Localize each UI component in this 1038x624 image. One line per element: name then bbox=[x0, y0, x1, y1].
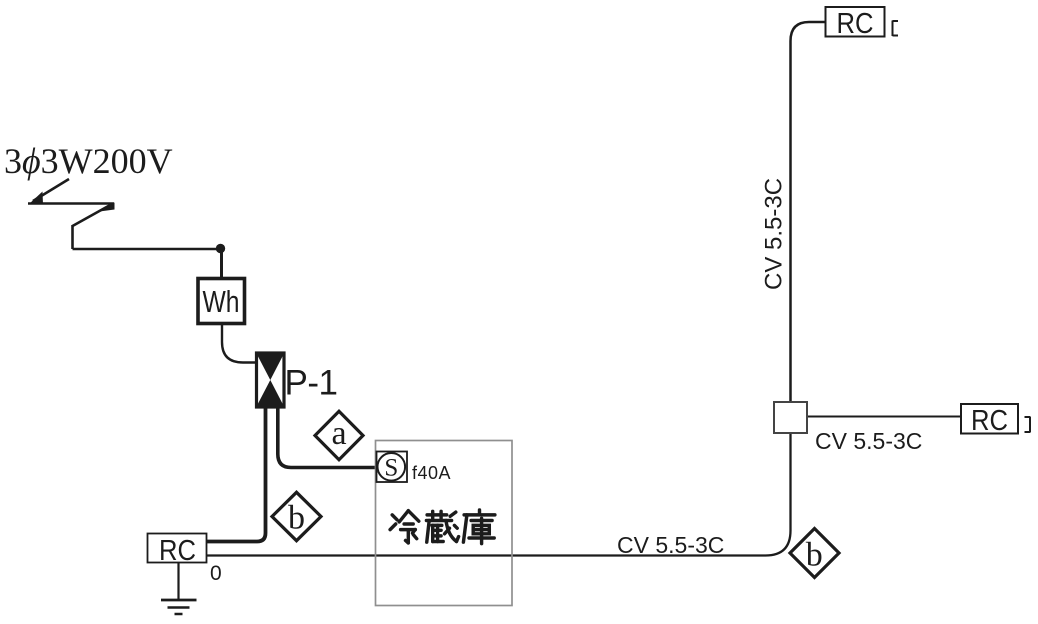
svg-text:P-1: P-1 bbox=[285, 364, 338, 403]
svg-text:RC: RC bbox=[971, 405, 1008, 437]
svg-text:3ϕ3W200V: 3ϕ3W200V bbox=[4, 141, 173, 181]
svg-text:CV 5.5-3C: CV 5.5-3C bbox=[815, 428, 922, 454]
svg-text:b: b bbox=[806, 537, 823, 574]
svg-text:a: a bbox=[331, 415, 346, 452]
svg-text:CV 5.5-3C: CV 5.5-3C bbox=[617, 532, 724, 558]
svg-text:f40A: f40A bbox=[412, 463, 451, 483]
svg-text:b: b bbox=[288, 500, 305, 537]
svg-text:Wh: Wh bbox=[203, 284, 240, 319]
svg-text:0: 0 bbox=[210, 562, 222, 585]
svg-text:S: S bbox=[384, 455, 398, 482]
svg-text:RC: RC bbox=[159, 535, 196, 567]
svg-text:RC: RC bbox=[837, 8, 874, 40]
svg-text:CV 5.5-3C: CV 5.5-3C bbox=[761, 178, 788, 290]
